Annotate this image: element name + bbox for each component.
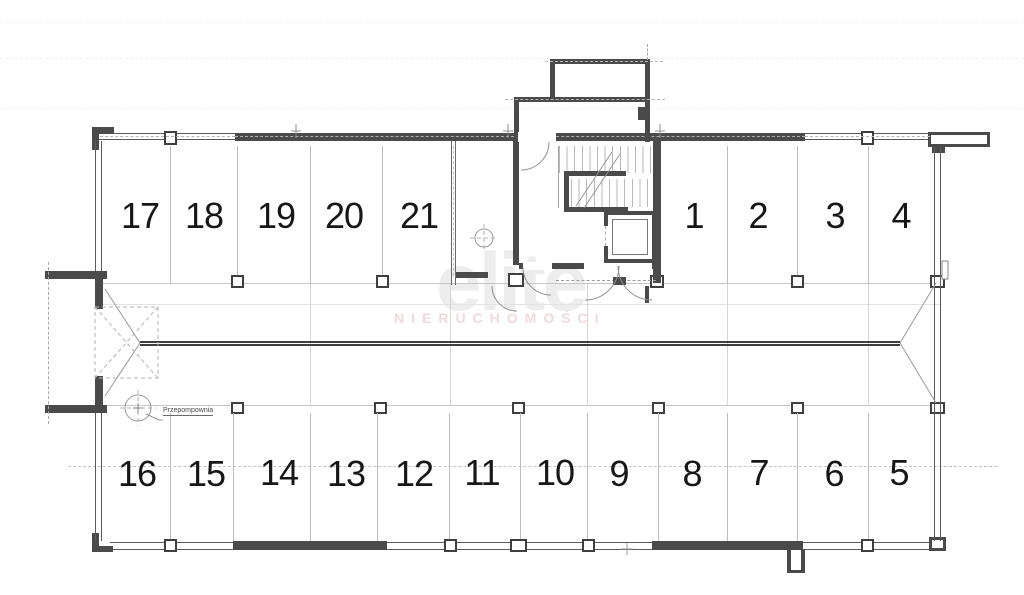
axis-line [505, 99, 665, 100]
space-number-10: 10 [536, 452, 574, 494]
door-opening [518, 132, 556, 142]
pump-symbol [125, 395, 151, 421]
column [231, 275, 244, 288]
column [791, 275, 804, 288]
column [861, 539, 874, 552]
pump-room-label: Przepompownia [163, 407, 213, 416]
door-opening [523, 262, 552, 270]
space-divider [658, 413, 659, 542]
stair-rail [564, 171, 626, 176]
space-number-9: 9 [609, 453, 628, 495]
space-number-14: 14 [260, 452, 298, 494]
column [508, 273, 524, 287]
axis-line-top [805, 136, 930, 137]
space-divider [520, 413, 521, 542]
space-number-16: 16 [118, 453, 156, 495]
axis-line-top [100, 136, 235, 137]
core-wall-inner [513, 141, 519, 265]
space-number-21: 21 [400, 195, 438, 237]
column [512, 402, 525, 414]
elevator-car [612, 219, 648, 255]
space-divider [310, 146, 311, 283]
space-divider [868, 413, 869, 542]
space-number-8: 8 [682, 453, 701, 495]
column [164, 539, 177, 552]
ramp-opening-line [48, 262, 49, 424]
column [444, 539, 457, 552]
space-number-1: 1 [684, 195, 703, 237]
scan-noise-line [0, 108, 1024, 109]
floor-plan-canvas: elite NIERUCHOMOŚCI [0, 0, 1024, 595]
space-number-3: 3 [825, 195, 844, 237]
column [510, 539, 527, 552]
ramp-wall [95, 376, 103, 408]
scan-noise-line [0, 58, 1024, 59]
watermark-subtitle: NIERUCHOMOŚCI [394, 310, 606, 326]
column [374, 402, 387, 414]
vestibule-wall-tab [638, 107, 647, 120]
space-number-17: 17 [121, 195, 159, 237]
space-divider [449, 413, 450, 542]
stair-rail [564, 171, 569, 212]
space-number-18: 18 [185, 195, 223, 237]
wall-bottom-thick [652, 541, 803, 550]
corner-bottom-left [92, 546, 113, 552]
space-number-20: 20 [325, 195, 363, 237]
space-number-13: 13 [327, 453, 365, 495]
stair-treads-upper [559, 146, 651, 173]
scan-noise-line [0, 22, 1024, 23]
column [376, 275, 389, 288]
space-number-4: 4 [891, 195, 910, 237]
threshold-line [556, 280, 656, 281]
pump-symbol-axes [120, 390, 156, 426]
ramp-diagonal-lines [105, 289, 140, 396]
column [582, 539, 595, 552]
space-divider [310, 413, 311, 542]
core-wall-axis [453, 146, 454, 276]
wall-left-upper [95, 141, 102, 272]
axis-line [545, 61, 663, 62]
space-divider [727, 413, 728, 542]
space-number-6: 6 [824, 453, 843, 495]
space-divider [797, 413, 798, 542]
space-divider [382, 146, 383, 283]
walkway-line [95, 304, 940, 305]
space-divider [170, 146, 171, 283]
space-number-15: 15 [187, 453, 225, 495]
space-number-2: 2 [748, 195, 767, 237]
space-number-19: 19 [257, 195, 295, 237]
wall-bottom-thick [233, 541, 387, 550]
space-number-11: 11 [464, 452, 499, 494]
space-divider [868, 146, 869, 283]
door-opening [584, 262, 652, 270]
core-wall-stub [456, 272, 488, 278]
stair-treads-lower [571, 179, 651, 207]
space-divider [233, 413, 234, 542]
ramp-wall [95, 277, 103, 309]
space-number-12: 12 [395, 453, 433, 495]
channel-fan-lines [900, 283, 936, 403]
column [164, 131, 177, 145]
drainage-channel [140, 341, 900, 346]
column [861, 131, 874, 145]
vestibule-wall [550, 59, 555, 102]
pump-leader-line [146, 414, 163, 420]
wall-bottom-jog [787, 570, 805, 573]
wall-right [934, 147, 941, 541]
axis-line [647, 44, 648, 60]
space-divider [377, 413, 378, 542]
threshold-block [613, 277, 626, 285]
space-divider [797, 146, 798, 283]
space-number-5: 5 [889, 452, 908, 494]
space-number-7: 7 [749, 452, 768, 494]
door-arc [521, 142, 549, 170]
space-divider [237, 146, 238, 283]
wall-left-lower [95, 413, 102, 541]
space-divider [727, 146, 728, 283]
door-leaf [645, 286, 649, 303]
wall-top-right-stub [928, 132, 990, 147]
elevator-door-line [605, 226, 606, 246]
space-divider [170, 413, 171, 542]
space-divider [587, 413, 588, 542]
